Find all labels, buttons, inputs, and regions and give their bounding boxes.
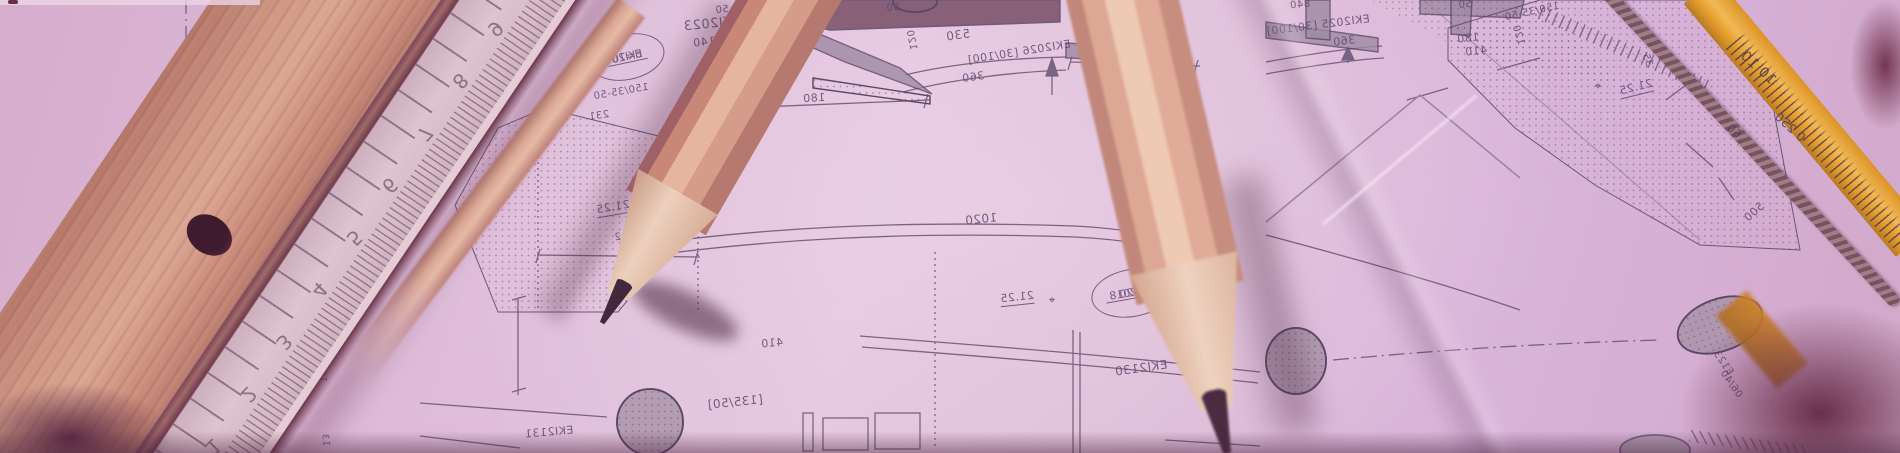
blueprint-label: 231	[588, 109, 610, 123]
blueprint-label: 120	[903, 29, 918, 51]
blueprint-label: 410	[1464, 43, 1488, 58]
blueprint-label: 410	[760, 336, 784, 351]
blueprint-label: 360	[1332, 33, 1356, 49]
blueprint-label: 500	[1741, 200, 1766, 225]
blueprint-label: 50	[886, 2, 900, 14]
blueprint-label: EKI2026 [30/100]	[967, 37, 1072, 66]
blueprint-label: [135/50]	[707, 392, 764, 412]
edge-smudge	[8, 0, 18, 4]
level-mark-icon: ⌖	[1049, 293, 1056, 308]
blueprint-label: 21.25	[999, 289, 1034, 307]
blueprint-label: 50	[1458, 0, 1473, 11]
blueprint-label: 360	[961, 69, 985, 85]
level-mark-icon: ⌖	[1595, 79, 1602, 94]
paper-edge-sliver	[0, 0, 260, 5]
blueprint-label: 180	[802, 91, 825, 106]
blueprint-label: 120	[1510, 24, 1527, 47]
blueprint-label: 21.25	[1618, 77, 1655, 100]
blueprint-photo-banner: EKI2023 140 50 20 027 150/35-50 231 180 …	[0, 0, 1900, 453]
bottom-edge-shadow	[0, 431, 1900, 453]
blueprint-label: 530	[945, 26, 971, 43]
blueprint-label: 1020	[964, 210, 998, 227]
